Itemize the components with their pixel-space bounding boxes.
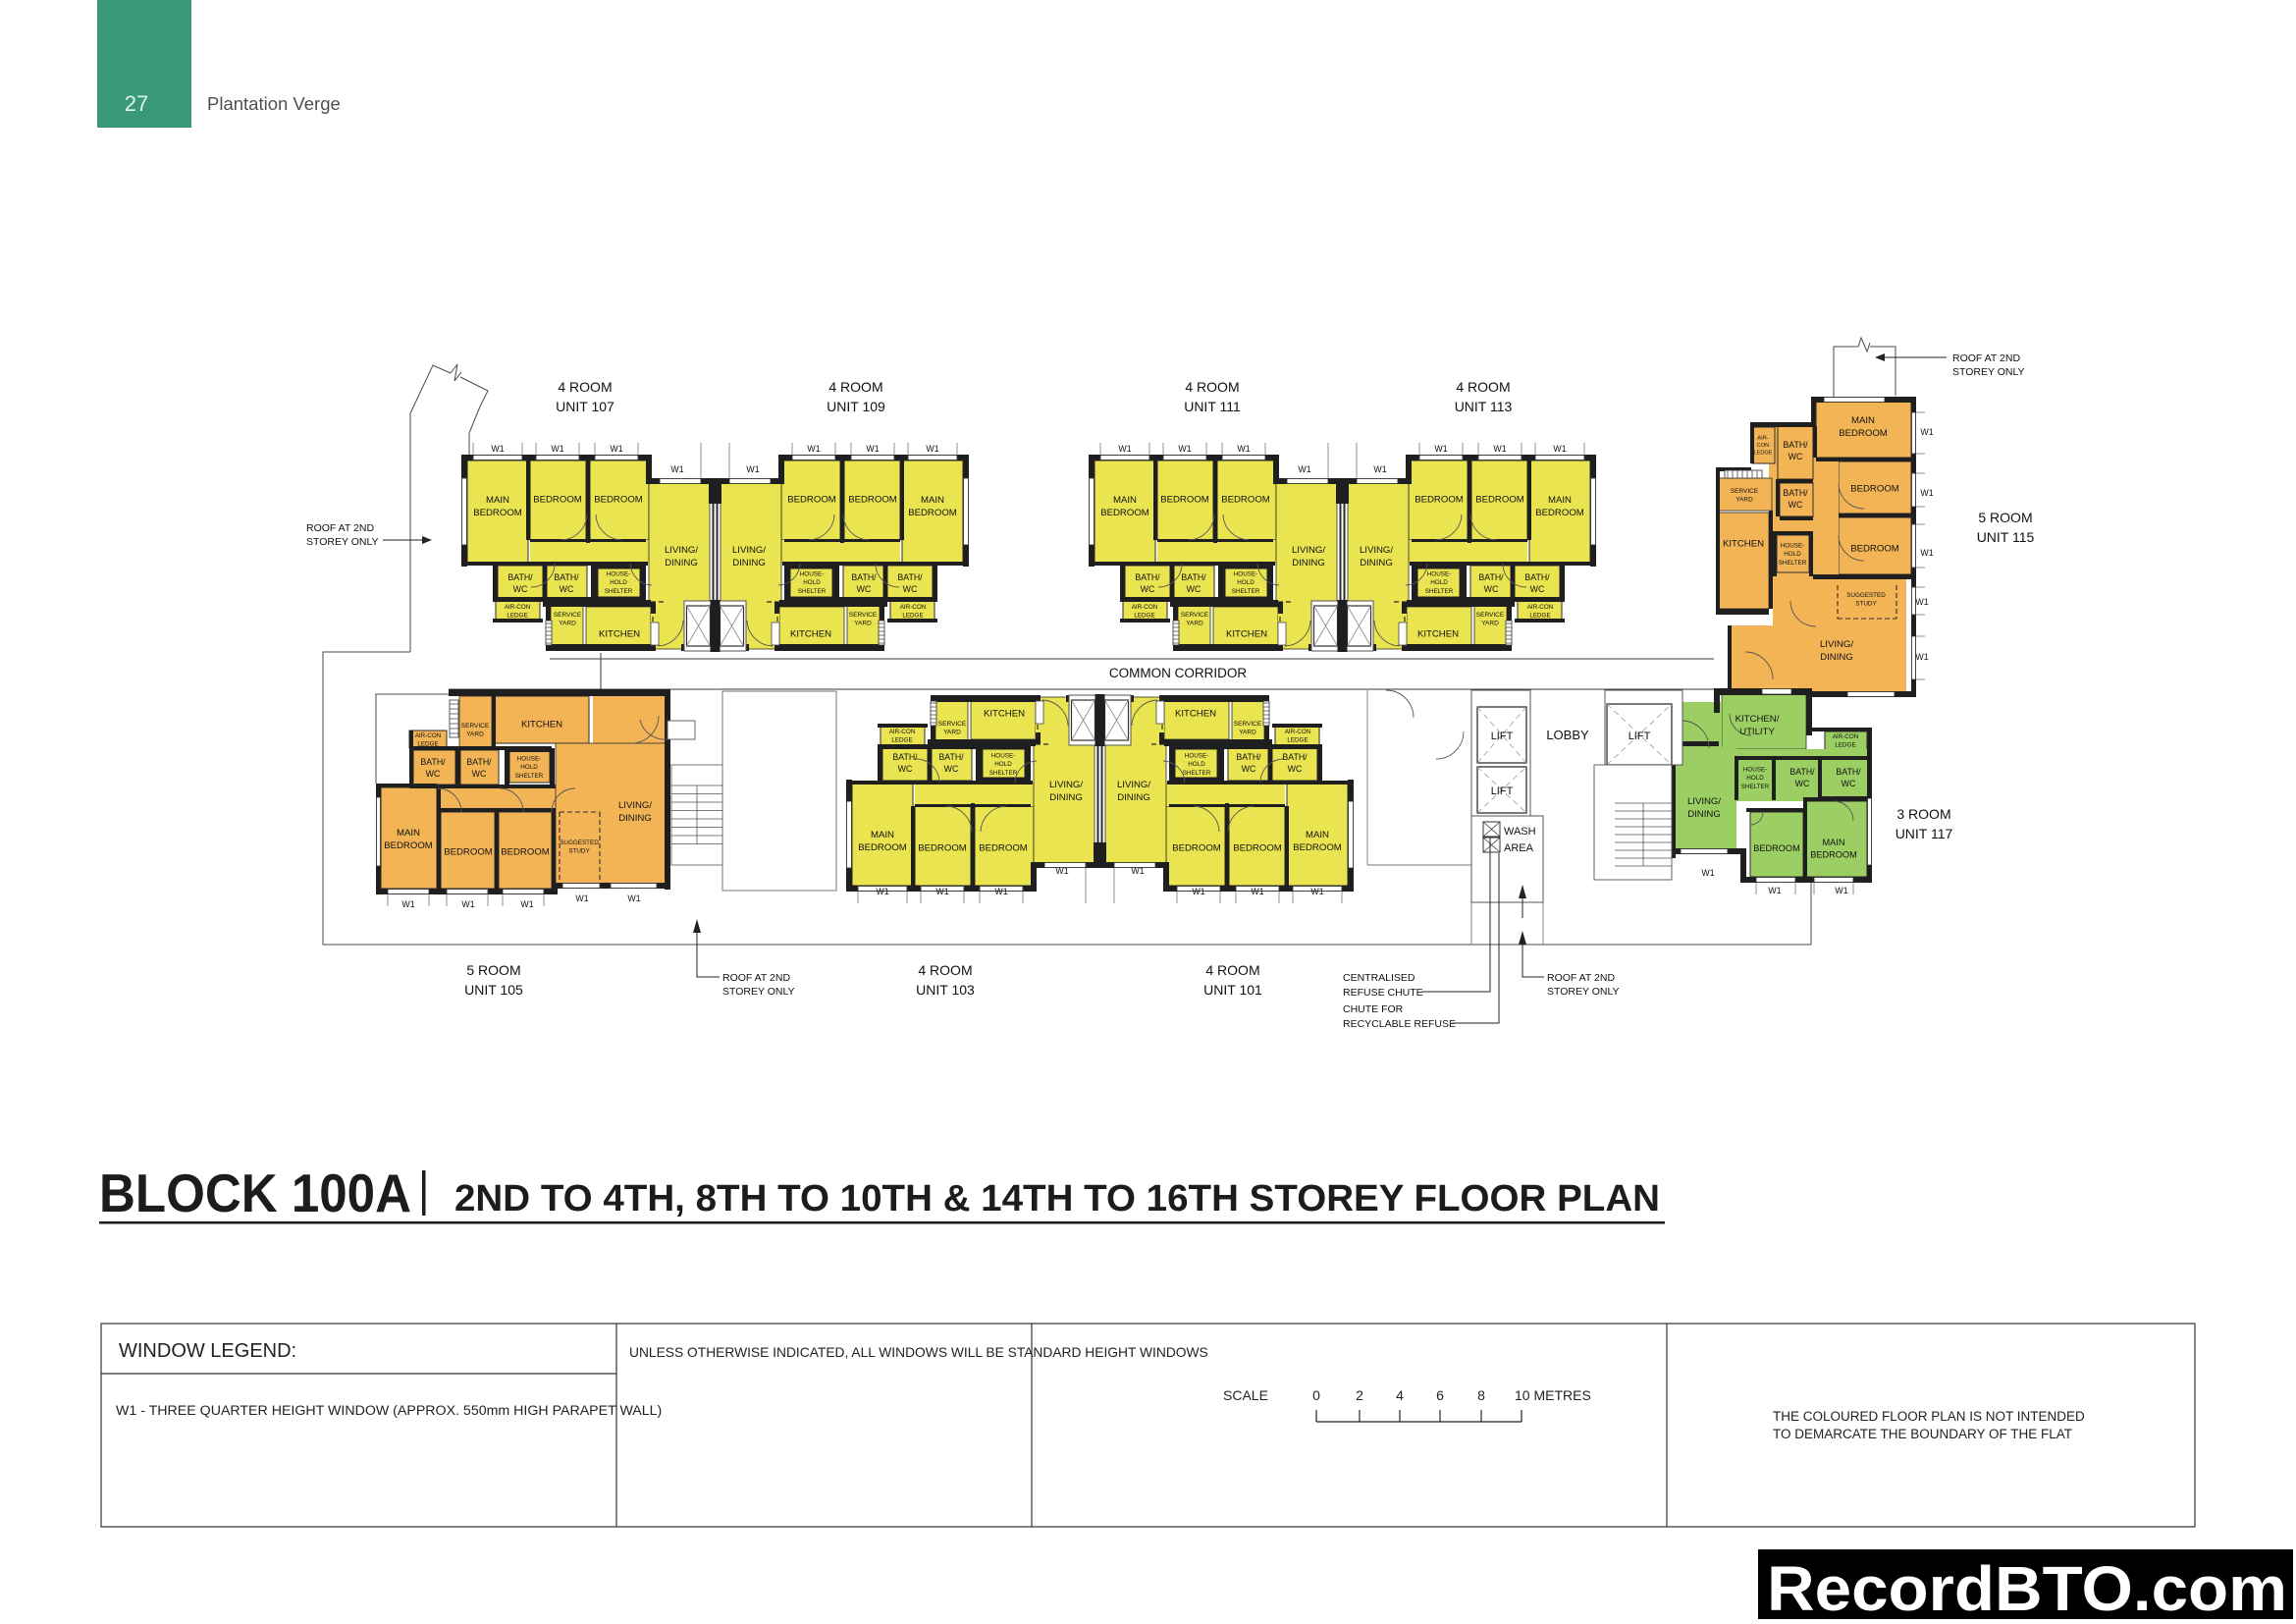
svg-text:DINING: DINING [1117, 792, 1150, 803]
svg-text:BEDROOM: BEDROOM [1172, 842, 1221, 853]
svg-text:DINING: DINING [1687, 809, 1721, 820]
svg-text:ROOF AT 2ND: ROOF AT 2ND [722, 972, 790, 984]
svg-text:W1: W1 [1493, 444, 1506, 454]
svg-text:DINING: DINING [1292, 558, 1325, 568]
svg-text:SERVICE: SERVICE [1731, 488, 1759, 495]
svg-text:BEDROOM: BEDROOM [1850, 543, 1899, 554]
svg-text:UNIT 105: UNIT 105 [464, 982, 523, 998]
svg-text:RECYCLABLE REFUSE: RECYCLABLE REFUSE [1343, 1018, 1456, 1030]
svg-text:HOUSE-: HOUSE- [1427, 571, 1452, 578]
svg-text:KITCHEN: KITCHEN [1175, 708, 1216, 719]
svg-text:DINING: DINING [1360, 558, 1393, 568]
svg-text:HOLD: HOLD [520, 764, 538, 771]
svg-text:BEDROOM: BEDROOM [918, 842, 967, 853]
svg-text:WC: WC [426, 769, 441, 779]
svg-text:RecordBTO.com: RecordBTO.com [1767, 1553, 2287, 1624]
svg-text:WC: WC [1530, 584, 1545, 594]
svg-text:STUDY: STUDY [1855, 601, 1877, 608]
svg-text:HOLD: HOLD [1188, 761, 1205, 768]
svg-text:Plantation Verge: Plantation Verge [207, 93, 341, 114]
svg-text:BEDROOM: BEDROOM [1160, 494, 1209, 505]
svg-text:STOREY ONLY: STOREY ONLY [722, 986, 795, 998]
svg-text:BEDROOM: BEDROOM [908, 508, 957, 518]
svg-text:HOLD: HOLD [994, 761, 1012, 768]
svg-text:LEDGE: LEDGE [1529, 612, 1550, 619]
svg-text:W1: W1 [994, 887, 1007, 896]
svg-text:MAIN: MAIN [486, 495, 509, 506]
svg-text:HOUSE-: HOUSE- [1185, 753, 1209, 760]
svg-text:WC: WC [898, 764, 913, 774]
svg-text:UNIT 109: UNIT 109 [827, 399, 885, 414]
svg-text:ROOF AT 2ND: ROOF AT 2ND [1547, 972, 1615, 984]
svg-text:W1: W1 [627, 893, 640, 903]
svg-text:CHUTE FOR: CHUTE FOR [1343, 1003, 1404, 1015]
svg-text:KITCHEN: KITCHEN [599, 628, 640, 639]
svg-text:BEDROOM: BEDROOM [473, 508, 522, 518]
svg-text:HOLD: HOLD [1237, 579, 1255, 586]
svg-text:LIFT: LIFT [1491, 731, 1514, 742]
svg-text:W1: W1 [1920, 488, 1933, 498]
svg-text:BATH/: BATH/ [554, 572, 579, 582]
svg-text:W1: W1 [1920, 548, 1933, 558]
svg-text:BATH/: BATH/ [1282, 752, 1308, 762]
svg-text:STUDY: STUDY [568, 848, 590, 855]
svg-text:STOREY ONLY: STOREY ONLY [1952, 366, 2025, 378]
svg-text:BATH/: BATH/ [1783, 440, 1808, 450]
svg-text:BEDROOM: BEDROOM [501, 846, 550, 857]
svg-text:BATH/: BATH/ [1836, 767, 1861, 777]
svg-text:SERVICE: SERVICE [554, 612, 582, 619]
svg-text:0: 0 [1312, 1387, 1320, 1403]
svg-text:SHELTER: SHELTER [605, 588, 633, 595]
svg-text:LIVING/: LIVING/ [1292, 545, 1325, 556]
svg-text:WC: WC [472, 769, 487, 779]
svg-text:W1: W1 [1915, 652, 1928, 662]
svg-text:BEDROOM: BEDROOM [1415, 494, 1464, 505]
svg-text:BEDROOM: BEDROOM [1293, 842, 1342, 853]
svg-text:LEDGE: LEDGE [507, 612, 527, 619]
svg-text:LIVING/: LIVING/ [1687, 796, 1721, 807]
svg-text:WC: WC [1789, 452, 1803, 461]
svg-text:AIR-CON: AIR-CON [415, 732, 442, 739]
svg-text:DINING: DINING [1049, 792, 1083, 803]
svg-text:6: 6 [1436, 1387, 1444, 1403]
svg-text:LEDGE: LEDGE [1835, 741, 1855, 748]
svg-text:W1: W1 [1055, 866, 1068, 876]
svg-text:YARD: YARD [943, 730, 961, 736]
svg-text:BEDROOM: BEDROOM [1233, 842, 1282, 853]
svg-text:LEDGE: LEDGE [891, 736, 912, 743]
svg-text:CON: CON [1757, 443, 1769, 449]
svg-text:BATH/: BATH/ [1524, 572, 1550, 582]
svg-text:W1: W1 [866, 444, 879, 454]
svg-text:LEDGE: LEDGE [902, 612, 923, 619]
svg-text:ROOF AT 2ND: ROOF AT 2ND [1952, 352, 2020, 364]
svg-text:SHELTER: SHELTER [989, 770, 1018, 777]
svg-text:REFUSE CHUTE: REFUSE CHUTE [1343, 987, 1423, 999]
svg-text:AIR-CON: AIR-CON [1285, 729, 1311, 735]
svg-text:W1: W1 [1118, 444, 1131, 454]
svg-text:W1: W1 [1768, 886, 1781, 895]
svg-text:2ND TO 4TH, 8TH TO 10TH & 14TH: 2ND TO 4TH, 8TH TO 10TH & 14TH TO 16TH S… [454, 1178, 1660, 1219]
svg-text:HOLD: HOLD [610, 579, 627, 586]
svg-text:WC: WC [1288, 764, 1303, 774]
svg-text:5 ROOM: 5 ROOM [466, 962, 520, 978]
svg-text:CENTRALISED: CENTRALISED [1343, 972, 1415, 984]
svg-text:YARD: YARD [1239, 730, 1256, 736]
svg-text:SHELTER: SHELTER [798, 588, 827, 595]
svg-text:10 METRES: 10 METRES [1515, 1387, 1591, 1403]
svg-text:YARD: YARD [559, 621, 576, 627]
svg-text:W1: W1 [935, 887, 948, 896]
svg-text:WC: WC [1242, 764, 1256, 774]
svg-text:BATH/: BATH/ [1135, 572, 1160, 582]
svg-text:WC: WC [1842, 779, 1856, 788]
svg-text:W1: W1 [1920, 427, 1933, 437]
svg-text:2: 2 [1356, 1387, 1363, 1403]
svg-text:COMMON CORRIDOR: COMMON CORRIDOR [1109, 666, 1247, 680]
svg-text:W1: W1 [670, 464, 683, 474]
svg-text:BEDROOM: BEDROOM [1221, 494, 1270, 505]
svg-text:BEDROOM: BEDROOM [979, 842, 1028, 853]
svg-text:W1: W1 [491, 444, 504, 454]
svg-text:MAIN: MAIN [397, 828, 420, 839]
svg-text:DINING: DINING [618, 813, 652, 824]
svg-text:UNIT 115: UNIT 115 [1977, 529, 2035, 545]
svg-text:BATH/: BATH/ [466, 757, 492, 767]
svg-text:HOUSE-: HOUSE- [1234, 571, 1258, 578]
svg-text:W1: W1 [461, 899, 474, 909]
svg-text:W1: W1 [1434, 444, 1447, 454]
svg-text:WC: WC [1484, 584, 1499, 594]
svg-text:HOUSE-: HOUSE- [1781, 543, 1805, 550]
svg-text:W1: W1 [551, 444, 563, 454]
svg-text:BEDROOM: BEDROOM [1100, 508, 1149, 518]
svg-text:4 ROOM: 4 ROOM [558, 379, 612, 395]
svg-text:LEDGE: LEDGE [1754, 450, 1773, 456]
svg-text:UNIT 101: UNIT 101 [1203, 982, 1262, 998]
svg-text:DINING: DINING [665, 558, 698, 568]
svg-text:4 ROOM: 4 ROOM [828, 379, 882, 395]
svg-text:BEDROOM: BEDROOM [533, 494, 582, 505]
svg-text:AIR-: AIR- [1757, 436, 1768, 442]
svg-text:UTILITY: UTILITY [1739, 727, 1775, 737]
svg-text:LEDGE: LEDGE [1287, 736, 1308, 743]
svg-text:W1 - THREE QUARTER HEIGHT WIN: W1 - THREE QUARTER HEIGHT WINDOW (APPROX… [116, 1403, 662, 1419]
svg-text:BEDROOM: BEDROOM [1475, 494, 1524, 505]
svg-text:HOUSE-: HOUSE- [800, 571, 825, 578]
svg-text:BEDROOM: BEDROOM [1850, 483, 1899, 494]
svg-text:SHELTER: SHELTER [1425, 588, 1454, 595]
svg-text:MAIN: MAIN [921, 495, 944, 506]
svg-text:WC: WC [857, 584, 872, 594]
svg-text:W1: W1 [401, 899, 414, 909]
svg-text:HOLD: HOLD [1746, 775, 1764, 782]
svg-text:BEDROOM: BEDROOM [1753, 843, 1799, 853]
svg-text:LIVING/: LIVING/ [618, 800, 652, 811]
svg-text:SHELTER: SHELTER [1779, 560, 1807, 567]
svg-text:BEDROOM: BEDROOM [1810, 850, 1856, 860]
svg-text:W1: W1 [1131, 866, 1144, 876]
svg-text:LIVING/: LIVING/ [1820, 639, 1853, 650]
svg-text:W1: W1 [1553, 444, 1566, 454]
svg-text:W1: W1 [1373, 464, 1386, 474]
svg-text:UNIT 107: UNIT 107 [556, 399, 614, 414]
svg-text:STOREY ONLY: STOREY ONLY [1547, 986, 1620, 998]
svg-text:3 ROOM: 3 ROOM [1896, 806, 1950, 822]
svg-text:YARD: YARD [1186, 621, 1203, 627]
svg-text:ROOF AT 2ND: ROOF AT 2ND [306, 522, 374, 534]
svg-text:WC: WC [944, 764, 959, 774]
svg-text:WC: WC [1141, 584, 1155, 594]
svg-text:KITCHEN: KITCHEN [790, 628, 831, 639]
svg-text:W1: W1 [575, 893, 588, 903]
svg-text:BEDROOM: BEDROOM [1535, 508, 1584, 518]
svg-text:BLOCK 100A: BLOCK 100A [99, 1163, 411, 1223]
svg-text:W1: W1 [1237, 444, 1250, 454]
svg-text:W1: W1 [746, 464, 759, 474]
svg-text:W1: W1 [1701, 868, 1714, 878]
svg-text:4 ROOM: 4 ROOM [1456, 379, 1510, 395]
svg-text:BEDROOM: BEDROOM [444, 846, 493, 857]
svg-text:YARD: YARD [466, 731, 484, 738]
svg-text:W1: W1 [610, 444, 622, 454]
svg-text:LIFT: LIFT [1629, 731, 1651, 742]
svg-text:WC: WC [903, 584, 918, 594]
svg-text:SHELTER: SHELTER [515, 773, 544, 780]
svg-text:BATH/: BATH/ [851, 572, 877, 582]
svg-text:4 ROOM: 4 ROOM [1205, 962, 1259, 978]
svg-text:W1: W1 [1915, 597, 1928, 607]
svg-text:LIVING/: LIVING/ [665, 545, 698, 556]
svg-text:SHELTER: SHELTER [1183, 770, 1211, 777]
svg-text:BATH/: BATH/ [420, 757, 446, 767]
svg-text:KITCHEN: KITCHEN [984, 708, 1025, 719]
svg-text:BATH/: BATH/ [892, 752, 918, 762]
svg-text:SERVICE: SERVICE [1476, 612, 1505, 619]
svg-text:4 ROOM: 4 ROOM [1185, 379, 1239, 395]
svg-text:MAIN: MAIN [871, 830, 894, 840]
svg-text:MAIN: MAIN [1113, 495, 1137, 506]
svg-text:MAIN: MAIN [1823, 838, 1845, 847]
svg-text:MAIN: MAIN [1306, 830, 1329, 840]
svg-text:W1: W1 [1298, 464, 1310, 474]
svg-text:LIVING/: LIVING/ [732, 545, 766, 556]
svg-text:W1: W1 [1835, 886, 1847, 895]
svg-text:5 ROOM: 5 ROOM [1978, 510, 2032, 525]
svg-text:W1: W1 [1310, 887, 1323, 896]
svg-text:BEDROOM: BEDROOM [858, 842, 907, 853]
svg-text:HOUSE-: HOUSE- [607, 571, 631, 578]
svg-text:BATH/: BATH/ [507, 572, 533, 582]
svg-text:UNIT 103: UNIT 103 [916, 982, 975, 998]
svg-text:W1: W1 [1192, 887, 1204, 896]
svg-text:SERVICE: SERVICE [1234, 721, 1262, 728]
svg-text:WC: WC [560, 584, 574, 594]
svg-text:LIVING/: LIVING/ [1117, 780, 1150, 790]
svg-text:KITCHEN: KITCHEN [521, 719, 562, 730]
svg-text:SUGGESTED: SUGGESTED [1846, 592, 1886, 599]
svg-text:SERVICE: SERVICE [938, 721, 967, 728]
svg-text:WINDOW LEGEND:: WINDOW LEGEND: [119, 1340, 296, 1362]
svg-text:BATH/: BATH/ [1236, 752, 1261, 762]
svg-text:BATH/: BATH/ [938, 752, 964, 762]
svg-text:DINING: DINING [1820, 652, 1853, 663]
svg-text:SERVICE: SERVICE [1181, 612, 1209, 619]
svg-text:AIR-CON: AIR-CON [900, 604, 927, 611]
svg-text:W1: W1 [807, 444, 820, 454]
svg-text:AIR-CON: AIR-CON [1527, 604, 1554, 611]
svg-text:HOUSE-: HOUSE- [517, 756, 542, 763]
svg-text:KITCHEN: KITCHEN [1226, 628, 1267, 639]
svg-text:BEDROOM: BEDROOM [384, 840, 433, 851]
svg-text:AIR-CON: AIR-CON [1132, 604, 1158, 611]
svg-text:HOUSE-: HOUSE- [991, 753, 1016, 760]
svg-text:DINING: DINING [732, 558, 766, 568]
svg-text:THE COLOURED FLOOR PLAN IS NOT: THE COLOURED FLOOR PLAN IS NOT INTENDED [1773, 1409, 2085, 1424]
svg-text:BATH/: BATH/ [1783, 488, 1808, 498]
svg-text:BEDROOM: BEDROOM [848, 494, 897, 505]
svg-text:HOLD: HOLD [1430, 579, 1448, 586]
svg-text:27: 27 [125, 91, 148, 116]
svg-text:BATH/: BATH/ [1478, 572, 1504, 582]
svg-text:BEDROOM: BEDROOM [594, 494, 643, 505]
svg-text:LEDGE: LEDGE [417, 740, 438, 747]
svg-text:LOBBY: LOBBY [1546, 728, 1589, 742]
svg-text:AIR-CON: AIR-CON [1833, 733, 1859, 740]
svg-text:UNIT 117: UNIT 117 [1896, 826, 1953, 841]
svg-text:WC: WC [513, 584, 528, 594]
svg-text:SHELTER: SHELTER [1232, 588, 1260, 595]
svg-text:SCALE: SCALE [1223, 1387, 1268, 1403]
svg-text:YARD: YARD [1481, 621, 1499, 627]
svg-text:W1: W1 [520, 899, 533, 909]
svg-text:8: 8 [1477, 1387, 1485, 1403]
svg-text:WASH: WASH [1504, 826, 1536, 838]
svg-text:LEDGE: LEDGE [1134, 612, 1154, 619]
svg-text:4 ROOM: 4 ROOM [918, 962, 972, 978]
svg-text:HOUSE-: HOUSE- [1743, 767, 1768, 774]
svg-text:AIR-CON: AIR-CON [889, 729, 916, 735]
svg-text:HOLD: HOLD [1784, 551, 1801, 558]
svg-text:MAIN: MAIN [1851, 415, 1875, 426]
svg-text:BATH/: BATH/ [1181, 572, 1206, 582]
svg-text:TO DEMARCATE THE BOUNDARY OF T: TO DEMARCATE THE BOUNDARY OF THE FLAT [1773, 1427, 2072, 1441]
svg-text:W1: W1 [1251, 887, 1263, 896]
svg-text:BATH/: BATH/ [1789, 767, 1815, 777]
svg-text:WC: WC [1795, 779, 1810, 788]
svg-text:AREA: AREA [1504, 842, 1534, 854]
svg-text:BATH/: BATH/ [897, 572, 923, 582]
svg-text:BEDROOM: BEDROOM [1839, 428, 1888, 439]
svg-text:4: 4 [1396, 1387, 1404, 1403]
svg-text:MAIN: MAIN [1548, 495, 1572, 506]
svg-text:UNIT 113: UNIT 113 [1455, 399, 1513, 414]
svg-text:KITCHEN/: KITCHEN/ [1735, 714, 1780, 725]
svg-text:STOREY ONLY: STOREY ONLY [306, 536, 379, 548]
svg-text:AIR-CON: AIR-CON [505, 604, 531, 611]
svg-text:LIVING/: LIVING/ [1360, 545, 1393, 556]
svg-text:WC: WC [1187, 584, 1201, 594]
svg-text:SERVICE: SERVICE [849, 612, 878, 619]
svg-text:HOLD: HOLD [803, 579, 821, 586]
svg-text:W1: W1 [876, 887, 888, 896]
svg-text:SERVICE: SERVICE [461, 723, 490, 730]
svg-text:YARD: YARD [1735, 497, 1753, 504]
svg-text:UNLESS OTHERWISE INDICATED, A: UNLESS OTHERWISE INDICATED, ALL WINDOWS … [629, 1345, 1208, 1360]
svg-text:SUGGESTED: SUGGESTED [560, 839, 599, 846]
svg-text:UNIT 111: UNIT 111 [1184, 399, 1241, 414]
svg-text:YARD: YARD [854, 621, 872, 627]
svg-text:W1: W1 [1178, 444, 1191, 454]
svg-text:KITCHEN: KITCHEN [1723, 538, 1764, 549]
svg-text:LIVING/: LIVING/ [1049, 780, 1083, 790]
svg-text:W1: W1 [926, 444, 938, 454]
svg-text:SHELTER: SHELTER [1741, 784, 1770, 790]
svg-text:LIFT: LIFT [1491, 785, 1514, 797]
svg-text:WC: WC [1789, 500, 1803, 510]
svg-text:KITCHEN: KITCHEN [1417, 628, 1459, 639]
svg-text:BEDROOM: BEDROOM [787, 494, 836, 505]
